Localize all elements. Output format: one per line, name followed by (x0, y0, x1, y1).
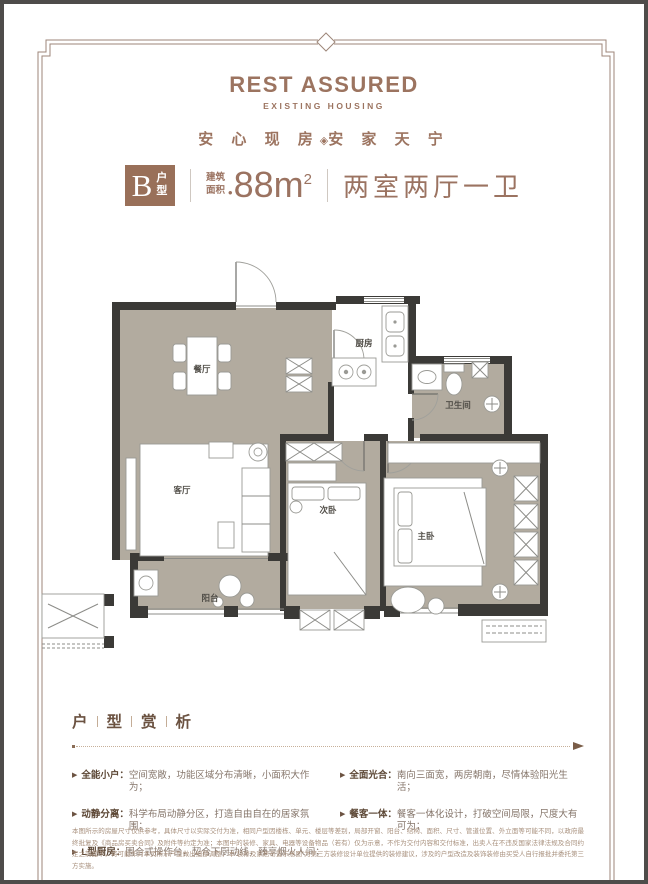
brand-title: REST ASSURED (4, 72, 644, 98)
area-dot: • (228, 186, 233, 199)
unit-type-letter: B (132, 170, 153, 201)
bullet-item: ▶ 全能小户： 空间宽敞，功能区域分布清晰，小面积大作为； (72, 770, 328, 795)
bullet-marker-icon: ▶ (340, 771, 345, 780)
brand-tagline: 安 心 现 房◈安 家 天 宁 (4, 128, 644, 149)
room-label-dining: 餐厅 (192, 364, 211, 374)
room-label-balcony: 阳台 (201, 593, 219, 603)
room-label-master: 主卧 (417, 531, 435, 541)
area-label: 建筑 面积 (206, 172, 225, 198)
bullet-text: 空间宽敞，功能区域分布清晰，小面积大作为； (129, 770, 328, 795)
heading-char: 析 (167, 710, 201, 732)
area-exponent: 2 (304, 171, 312, 188)
rule-dot (72, 745, 75, 748)
bullet-label: 动静分离： (81, 809, 129, 821)
poster-page: REST ASSURED EXISTING HOUSING 安 心 现 房◈安 … (0, 0, 648, 884)
room-label-bedroom2: 次卧 (319, 505, 337, 515)
floorplan: 餐厅 厨房 卫生间 客厅 次卧 主卧 阳台 (34, 252, 584, 672)
diamond-icon: ◈ (320, 135, 328, 147)
dotted-rule (72, 744, 584, 750)
area-value: 88m2 (234, 164, 312, 206)
room-label-living: 客厅 (172, 485, 191, 495)
heading-char: 赏 (132, 710, 166, 732)
living-furniture (126, 442, 270, 556)
bullet-text: 南向三面宽，两房朝南，尽情体验阳光生活； (397, 770, 584, 795)
unit-type-badge: B 户型 (125, 165, 175, 206)
analysis-heading: 户 型 赏 析 (72, 710, 584, 732)
tagline-left: 安 心 现 房 (198, 131, 320, 148)
brand-subtitle: EXISTING HOUSING (4, 101, 644, 111)
title-divider (190, 169, 191, 202)
rule-line (76, 746, 570, 747)
floorplan-svg: 餐厅 厨房 卫生间 客厅 次卧 主卧 阳台 (34, 252, 584, 672)
brand-header: REST ASSURED EXISTING HOUSING 安 心 现 房◈安 … (4, 72, 644, 149)
room-label-kitchen: 厨房 (355, 338, 372, 348)
unit-type-suffix: 户型 (156, 172, 168, 197)
bullet-label: 全面光合： (349, 770, 397, 782)
rooms-summary: 两室两厅一卫 (343, 167, 523, 204)
bullet-marker-icon: ▶ (72, 771, 77, 780)
disclaimer-text: 本图所示的房屋尺寸仅供参考，具体尺寸以实际交付为准，相同户型因楼栋、单元、楼层等… (72, 826, 584, 873)
title-divider (327, 169, 328, 202)
bullet-marker-icon: ▶ (340, 810, 345, 819)
bullet-label: 餐客一体： (349, 809, 397, 821)
heading-char: 户 (72, 710, 97, 732)
bullet-label: 全能小户： (81, 770, 129, 782)
heading-char: 型 (98, 710, 132, 732)
room-label-bathroom: 卫生间 (445, 400, 471, 410)
bullet-item: ▶ 全面光合： 南向三面宽，两房朝南，尽情体验阳光生活； (340, 770, 584, 795)
area-block: 建筑 面积 • 88m2 (206, 164, 312, 206)
arrow-right-icon (573, 742, 584, 750)
unit-title-bar: B 户型 建筑 面积 • 88m2 两室两厅一卫 (4, 164, 644, 206)
bullet-marker-icon: ▶ (72, 810, 77, 819)
tagline-right: 安 家 天 宁 (328, 131, 450, 148)
